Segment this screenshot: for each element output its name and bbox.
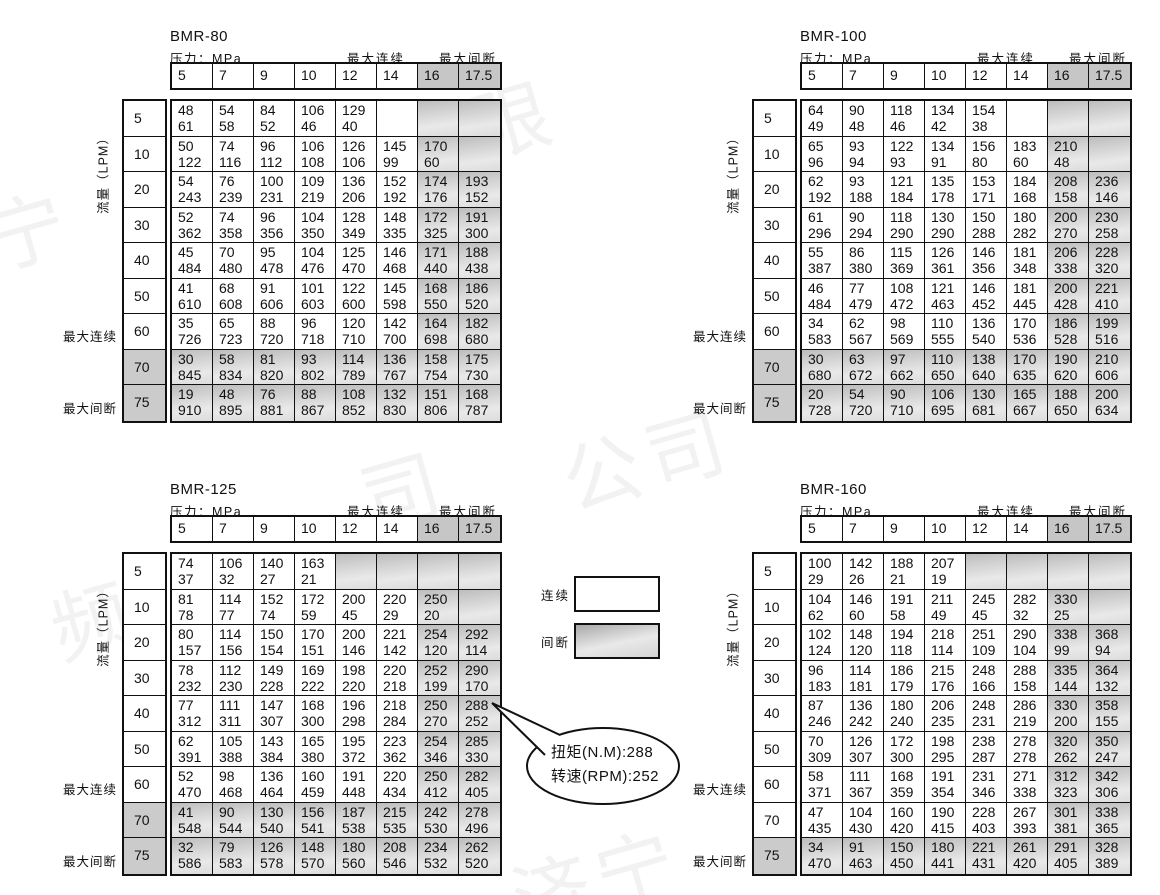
- pressure-header-cell: 10: [295, 517, 336, 541]
- speed-value: 650: [931, 367, 965, 383]
- speed-value: 78: [178, 607, 212, 623]
- speed-value: 350: [301, 225, 335, 241]
- data-cell: 210606: [1089, 350, 1130, 386]
- data-cell: 149228: [254, 661, 295, 697]
- speed-value: 867: [301, 402, 335, 418]
- torque-value: 130: [972, 386, 1006, 402]
- torque-value: 76: [260, 386, 294, 402]
- speed-value: 219: [301, 189, 335, 205]
- data-cell: 114181: [843, 661, 884, 697]
- torque-value: 290: [1013, 626, 1047, 642]
- table-title: BMR-125: [170, 481, 237, 498]
- torque-value: 84: [260, 102, 294, 118]
- speed-value: 910: [178, 402, 212, 418]
- data-cell: 17259: [295, 590, 336, 626]
- flow-header-cell: 40: [754, 696, 795, 732]
- data-cell: 34583: [802, 314, 843, 350]
- data-cell: 271338: [1007, 767, 1048, 803]
- speed-value: 405: [1054, 855, 1088, 871]
- torque-value: 150: [972, 209, 1006, 225]
- speed-value: 550: [424, 296, 458, 312]
- pressure-header-cell: 17.5: [1089, 517, 1130, 541]
- data-cell: 152192: [377, 172, 418, 208]
- speed-value: 372: [342, 749, 376, 765]
- speed-value: 154: [260, 642, 294, 658]
- speed-value: 412: [424, 784, 458, 800]
- data-cell: 251109: [966, 625, 1007, 661]
- torque-value: 146: [972, 280, 1006, 296]
- flow-header-cell: 60: [124, 767, 165, 803]
- data-cell: 19910: [172, 385, 213, 421]
- data-cell: 126578: [254, 838, 295, 874]
- speed-value: 578: [260, 855, 294, 871]
- speed-value: 46: [301, 118, 335, 134]
- torque-value: 106: [931, 386, 965, 402]
- torque-value: 146: [972, 244, 1006, 260]
- torque-value: 200: [1095, 386, 1130, 402]
- torque-value: 110: [931, 315, 965, 331]
- flow-header-cell: 70: [754, 803, 795, 839]
- torque-value: 45: [178, 244, 212, 260]
- data-grid: 7437106321402716321817811477152741725920…: [170, 552, 502, 876]
- data-cell: 77479: [843, 279, 884, 315]
- speed-value: 530: [424, 820, 458, 836]
- speed-value: 540: [972, 331, 1006, 347]
- speed-value: 450: [890, 855, 924, 871]
- data-cell: 223362: [377, 732, 418, 768]
- speed-value: 166: [972, 678, 1006, 694]
- speed-value: 179: [890, 678, 924, 694]
- torque-value: 250: [424, 697, 458, 713]
- data-cell: 148570: [295, 838, 336, 874]
- speed-value: 218: [383, 678, 417, 694]
- torque-value: 79: [219, 839, 253, 855]
- torque-value: 165: [1013, 386, 1047, 402]
- data-cell: 208546: [377, 838, 418, 874]
- data-cell: 32586: [172, 838, 213, 874]
- data-cell: [1048, 554, 1089, 590]
- speed-value: 728: [808, 402, 842, 418]
- data-cell: 165380: [295, 732, 336, 768]
- torque-value: 74: [178, 555, 212, 571]
- torque-value: 181: [1013, 244, 1047, 260]
- torque-value: 238: [972, 733, 1006, 749]
- speed-value: 452: [972, 296, 1006, 312]
- pressure-header-cell: 7: [843, 517, 884, 541]
- data-cell: 288158: [1007, 661, 1048, 697]
- torque-value: 271: [1013, 768, 1047, 784]
- torque-value: 193: [465, 173, 500, 189]
- speed-value: 700: [383, 331, 417, 347]
- data-cell: 98569: [884, 314, 925, 350]
- data-cell: 88720: [254, 314, 295, 350]
- torque-value: 68: [219, 280, 253, 296]
- speed-value: 246: [808, 713, 842, 729]
- data-cell: 30845: [172, 350, 213, 386]
- torque-value: 228: [972, 804, 1006, 820]
- torque-value: 215: [383, 804, 417, 820]
- torque-value: 200: [342, 626, 376, 642]
- torque-value: 54: [178, 173, 212, 189]
- speed-value: 94: [1095, 642, 1130, 658]
- torque-value: 96: [808, 662, 842, 678]
- torque-value: 65: [219, 315, 253, 331]
- flow-header-cell: 60: [124, 314, 165, 350]
- flow-header-cell: 40: [124, 243, 165, 279]
- torque-value: 74: [219, 209, 253, 225]
- torque-value: 150: [260, 626, 294, 642]
- torque-value: 126: [342, 138, 376, 154]
- data-cell: 128349: [336, 208, 377, 244]
- speed-value: 546: [383, 855, 417, 871]
- torque-value: 112: [219, 662, 253, 678]
- torque-value: 65: [808, 138, 842, 154]
- data-cell: 221142: [377, 625, 418, 661]
- data-cell: 28232: [1007, 590, 1048, 626]
- data-cell: 19158: [884, 590, 925, 626]
- data-cell: 74116: [213, 137, 254, 173]
- torque-value: 350: [1095, 733, 1130, 749]
- speed-value: 356: [972, 260, 1006, 276]
- speed-value: 48: [1054, 154, 1088, 170]
- speed-value: 789: [342, 367, 376, 383]
- speed-value: 176: [424, 189, 458, 205]
- torque-value: 90: [890, 386, 924, 402]
- speed-value: 29: [383, 607, 417, 623]
- data-cell: 98468: [213, 767, 254, 803]
- torque-value: 180: [1013, 209, 1047, 225]
- data-cell: 135178: [925, 172, 966, 208]
- data-cell: 104476: [295, 243, 336, 279]
- data-cell: 46484: [802, 279, 843, 315]
- speed-value: 384: [260, 749, 294, 765]
- torque-value: 198: [342, 662, 376, 678]
- speed-value: 290: [890, 225, 924, 241]
- speed-value: 312: [178, 713, 212, 729]
- data-cell: 206338: [1048, 243, 1089, 279]
- speed-value: 470: [342, 260, 376, 276]
- data-cell: 250412: [418, 767, 459, 803]
- speed-value: 560: [342, 855, 376, 871]
- pressure-header-cell: 12: [966, 517, 1007, 541]
- data-cell: 291405: [1048, 838, 1089, 874]
- speed-value: 146: [342, 642, 376, 658]
- pressure-header-cell: 5: [802, 64, 843, 88]
- speed-value: 380: [849, 260, 883, 276]
- data-cell: 34470: [802, 838, 843, 874]
- torque-value: 129: [342, 102, 376, 118]
- torque-value: 91: [849, 839, 883, 855]
- pressure-header-cell: 17.5: [459, 64, 500, 88]
- torque-value: 191: [890, 591, 924, 607]
- torque-value: 188: [465, 244, 500, 260]
- torque-value: 252: [424, 662, 458, 678]
- torque-value: 165: [301, 733, 335, 749]
- data-cell: 136242: [843, 696, 884, 732]
- speed-value: 434: [383, 784, 417, 800]
- data-cell: 198220: [336, 661, 377, 697]
- data-cell: [1089, 101, 1130, 137]
- speed-value: 695: [931, 402, 965, 418]
- data-cell: 136206: [336, 172, 377, 208]
- torque-value: 121: [890, 173, 924, 189]
- data-cell: 171440: [418, 243, 459, 279]
- speed-value: 184: [890, 189, 924, 205]
- speed-value: 371: [808, 784, 842, 800]
- speed-value: 389: [1095, 855, 1130, 871]
- data-cell: 12293: [884, 137, 925, 173]
- speed-value: 472: [890, 296, 924, 312]
- data-cell: 168300: [295, 696, 336, 732]
- speed-value: 606: [260, 296, 294, 312]
- data-cell: 61296: [802, 208, 843, 244]
- torque-value: 172: [424, 209, 458, 225]
- speed-value: 369: [890, 260, 924, 276]
- torque-value: 180: [342, 839, 376, 855]
- speed-value: 420: [890, 820, 924, 836]
- torque-value: 136: [972, 315, 1006, 331]
- table-title: BMR-160: [800, 481, 867, 498]
- speed-value: 672: [849, 367, 883, 383]
- data-cell: 118290: [884, 208, 925, 244]
- torque-value: 47: [808, 804, 842, 820]
- speed-value: 278: [1013, 749, 1047, 765]
- data-cell: 186520: [459, 279, 500, 315]
- speed-value: 21: [890, 571, 924, 587]
- torque-value: 171: [424, 244, 458, 260]
- max-continuous-side-label: 最大连续: [675, 326, 747, 345]
- torque-value: 220: [383, 591, 417, 607]
- speed-value: 228: [260, 678, 294, 694]
- torque-value: 172: [301, 591, 335, 607]
- torque-value: 180: [890, 697, 924, 713]
- torque-value: 221: [972, 839, 1006, 855]
- speed-value: 640: [972, 367, 1006, 383]
- data-cell: 292114: [459, 625, 500, 661]
- torque-value: 105: [219, 733, 253, 749]
- data-cell: 230258: [1089, 208, 1130, 244]
- data-cell: 93802: [295, 350, 336, 386]
- data-cell: [418, 554, 459, 590]
- torque-value: 267: [1013, 804, 1047, 820]
- data-cell: 136767: [377, 350, 418, 386]
- torque-value: 93: [301, 351, 335, 367]
- torque-value: 261: [1013, 839, 1047, 855]
- speed-value: 362: [383, 749, 417, 765]
- flow-header-cell: 10: [124, 590, 165, 626]
- flow-header-cell: 70: [124, 350, 165, 386]
- speed-value: 183: [808, 678, 842, 694]
- flow-header-cell: 5: [754, 554, 795, 590]
- data-cell: 146468: [377, 243, 418, 279]
- speed-value: 181: [849, 678, 883, 694]
- torque-value: 96: [301, 315, 335, 331]
- data-cell: 130290: [925, 208, 966, 244]
- speed-value: 346: [424, 749, 458, 765]
- speed-value: 96: [808, 154, 842, 170]
- data-cell: 20719: [925, 554, 966, 590]
- data-cell: 81820: [254, 350, 295, 386]
- pressure-header-cell: 9: [884, 517, 925, 541]
- speed-value: 362: [178, 225, 212, 241]
- data-cell: 76881: [254, 385, 295, 421]
- speed-value: 206: [342, 189, 376, 205]
- torque-value: 146: [383, 244, 417, 260]
- speed-value: 388: [219, 749, 253, 765]
- torque-value: 19: [178, 386, 212, 402]
- speed-value: 723: [219, 331, 253, 347]
- torque-value: 170: [1013, 315, 1047, 331]
- torque-value: 104: [301, 209, 335, 225]
- speed-value: 188: [849, 189, 883, 205]
- data-cell: 182680: [459, 314, 500, 350]
- data-cell: 21149: [925, 590, 966, 626]
- torque-value: 191: [931, 768, 965, 784]
- data-cell: 121184: [884, 172, 925, 208]
- data-cell: 108472: [884, 279, 925, 315]
- data-cell: 65723: [213, 314, 254, 350]
- speed-value: 120: [849, 642, 883, 658]
- flow-header-cell: 75: [124, 385, 165, 421]
- speed-value: 567: [849, 331, 883, 347]
- speed-value: 93: [890, 154, 924, 170]
- data-cell: 6449: [802, 101, 843, 137]
- data-cell: 191448: [336, 767, 377, 803]
- torque-value: 114: [219, 626, 253, 642]
- data-cell: 24545: [966, 590, 1007, 626]
- data-cell: 11846: [884, 101, 925, 137]
- speed-value: 242: [849, 713, 883, 729]
- data-cell: 47435: [802, 803, 843, 839]
- torque-value: 48: [178, 102, 212, 118]
- torque-value: 126: [260, 839, 294, 855]
- flow-header-cell: 5: [124, 554, 165, 590]
- speed-value: 230: [219, 678, 253, 694]
- speed-value: 60: [849, 607, 883, 623]
- data-cell: [1007, 101, 1048, 137]
- torque-value: 130: [931, 209, 965, 225]
- data-cell: 18360: [1007, 137, 1048, 173]
- torque-value: 182: [465, 315, 500, 331]
- torque-value: 52: [178, 768, 212, 784]
- speed-value: 151: [301, 642, 335, 658]
- flow-header-cell: 20: [124, 172, 165, 208]
- pressure-header-cell: 14: [1007, 517, 1048, 541]
- speed-value: 156: [219, 642, 253, 658]
- pressure-header-cell: 7: [843, 64, 884, 88]
- data-cell: 130681: [966, 385, 1007, 421]
- speed-value: 282: [1013, 225, 1047, 241]
- data-cell: 180282: [1007, 208, 1048, 244]
- data-cell: 54243: [172, 172, 213, 208]
- data-cell: 169222: [295, 661, 336, 697]
- speed-value: 77: [219, 607, 253, 623]
- data-cell: 158754: [418, 350, 459, 386]
- torque-value: 61: [808, 209, 842, 225]
- speed-value: 802: [301, 367, 335, 383]
- speed-value: 99: [383, 154, 417, 170]
- speed-value: 548: [178, 820, 212, 836]
- data-cell: 150288: [966, 208, 1007, 244]
- speed-value: 45: [972, 607, 1006, 623]
- data-cell: 190415: [925, 803, 966, 839]
- torque-value: 122: [342, 280, 376, 296]
- torque-value: 152: [260, 591, 294, 607]
- data-cell: 290104: [1007, 625, 1048, 661]
- speed-value: 219: [1013, 713, 1047, 729]
- data-cell: 111367: [843, 767, 884, 803]
- torque-value: 248: [972, 697, 1006, 713]
- data-cell: 102124: [802, 625, 843, 661]
- torque-value: 58: [808, 768, 842, 784]
- data-cell: 90294: [843, 208, 884, 244]
- data-grid: 4861545884521064612940501227411696112106…: [170, 99, 502, 423]
- speed-value: 730: [465, 367, 500, 383]
- torque-value: 245: [972, 591, 1006, 607]
- speed-value: 349: [342, 225, 376, 241]
- speed-value: 21: [301, 571, 335, 587]
- flow-header-cell: 70: [754, 350, 795, 386]
- torque-value: 100: [808, 555, 842, 571]
- data-cell: 148120: [843, 625, 884, 661]
- torque-value: 121: [931, 280, 965, 296]
- speed-value: 634: [1095, 402, 1130, 418]
- torque-value: 130: [260, 804, 294, 820]
- torque-value: 147: [260, 697, 294, 713]
- data-cell: 358155: [1089, 696, 1130, 732]
- torque-value: 156: [972, 138, 1006, 154]
- speed-value: 428: [1054, 296, 1088, 312]
- torque-value: 218: [383, 697, 417, 713]
- torque-value: 70: [219, 244, 253, 260]
- torque-value: 142: [849, 555, 883, 571]
- speed-value: 99: [1054, 642, 1088, 658]
- torque-value: 231: [972, 768, 1006, 784]
- torque-value: 136: [260, 768, 294, 784]
- speed-value: 431: [972, 855, 1006, 871]
- torque-value: 142: [383, 315, 417, 331]
- data-cell: 250270: [418, 696, 459, 732]
- torque-value: 118: [890, 209, 924, 225]
- torque-value: 186: [465, 280, 500, 296]
- data-cell: 168359: [884, 767, 925, 803]
- torque-value: 164: [424, 315, 458, 331]
- data-cell: 100231: [254, 172, 295, 208]
- torque-value: 292: [465, 626, 500, 642]
- speed-value: 464: [260, 784, 294, 800]
- speed-value: 610: [178, 296, 212, 312]
- torque-value: 170: [301, 626, 335, 642]
- data-cell: 350247: [1089, 732, 1130, 768]
- data-cell: 97662: [884, 350, 925, 386]
- torque-value: 90: [219, 804, 253, 820]
- speed-value: 116: [219, 154, 253, 170]
- speed-value: 520: [465, 296, 500, 312]
- data-cell: 10462: [802, 590, 843, 626]
- flow-axis-label: 流量（LPM）: [93, 566, 112, 686]
- torque-value: 30: [178, 351, 212, 367]
- flow-header-cell: 30: [754, 208, 795, 244]
- data-cell: 186528: [1048, 314, 1089, 350]
- speed-value: 608: [219, 296, 253, 312]
- speed-value: 171: [972, 189, 1006, 205]
- torque-value: 102: [808, 626, 842, 642]
- torque-value: 288: [1013, 662, 1047, 678]
- torque-value: 188: [1054, 386, 1088, 402]
- speed-value: 220: [342, 678, 376, 694]
- torque-value: 207: [931, 555, 965, 571]
- data-cell: 106695: [925, 385, 966, 421]
